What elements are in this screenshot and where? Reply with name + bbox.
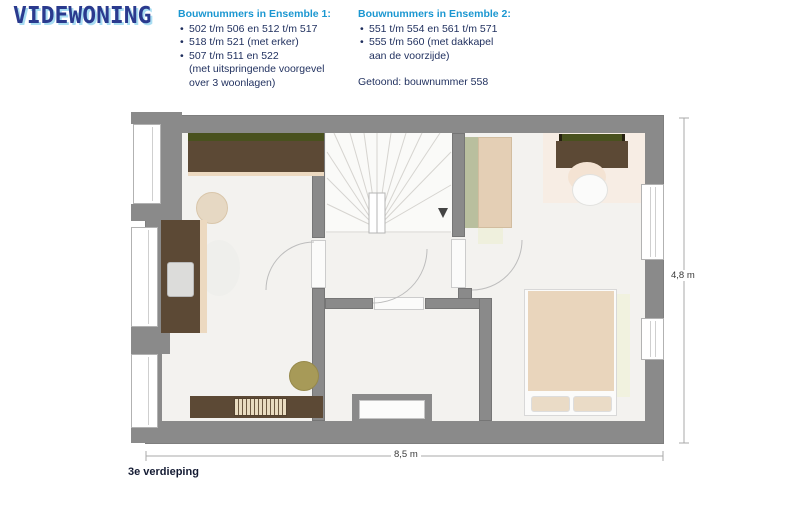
- bay-window: [133, 124, 161, 204]
- basket: [478, 228, 503, 244]
- bay-wall-jamb: [161, 124, 182, 210]
- left-wall-corner: [131, 428, 146, 443]
- dimension-width: 8,5 m: [391, 449, 421, 460]
- ensemble1-item: 507 t/m 511 en 522 (met uitspringende vo…: [178, 50, 358, 91]
- floor-label: 3e verdieping: [128, 466, 199, 478]
- ensemble2-block: Bouwnummers in Ensemble 2: 551 t/m 554 e…: [358, 8, 563, 90]
- ensemble2-title: Bouwnummers in Ensemble 2:: [358, 8, 563, 22]
- brand-logo: VIDEWONING: [13, 3, 151, 29]
- desk-chair: [167, 262, 194, 297]
- desk-left-edge: [200, 220, 207, 333]
- shown-bouwnummer: Getoond: bouwnummer 558: [358, 76, 563, 90]
- desk-chair-bedroom-back: [572, 174, 608, 206]
- ensemble2-list: 551 t/m 554 en 561 t/m 571 555 t/m 560 (…: [358, 23, 563, 64]
- left-window-middle: [131, 227, 158, 327]
- ensemble1-item: 518 t/m 521 (met erker): [178, 36, 358, 50]
- wall-top: [146, 116, 663, 133]
- wall-stairs-right: [452, 133, 465, 237]
- books: [234, 398, 287, 416]
- wall-midroom-right: [479, 298, 492, 421]
- wall-bottom: [146, 421, 663, 443]
- bed-pillow-left: [531, 396, 570, 412]
- right-window-bottom: [641, 318, 664, 360]
- ensemble1-list: 502 t/m 506 en 512 t/m 517 518 t/m 521 (…: [178, 23, 358, 91]
- ensemble2-item: 555 t/m 560 (met dakkapel aan de voorzij…: [358, 36, 563, 63]
- ensemble1-block: Bouwnummers in Ensemble 1: 502 t/m 506 e…: [178, 8, 358, 90]
- staircase: [326, 133, 452, 233]
- dimension-height: 4,8 m: [668, 270, 698, 281]
- bed-runner: [617, 294, 630, 397]
- door-leftroom: [311, 240, 326, 288]
- wardrobe-bedroom-side: [465, 137, 478, 228]
- wardrobe-top-strip: [188, 133, 324, 141]
- wall-midroom-top-left: [325, 298, 373, 309]
- wardrobe-front-edge: [188, 172, 324, 176]
- bay-wall-top: [131, 112, 182, 124]
- ensemble1-item: 502 t/m 506 en 512 t/m 517: [178, 23, 358, 37]
- desk-top-strip: [559, 134, 625, 141]
- right-window-top: [641, 184, 664, 260]
- bed-pillow-right: [573, 396, 612, 412]
- left-window-bottom: [131, 354, 158, 428]
- dormer-window: [359, 400, 425, 419]
- ensemble1-title: Bouwnummers in Ensemble 1:: [178, 8, 358, 22]
- bed-duvet: [528, 291, 614, 391]
- ensemble2-item: 551 t/m 554 en 561 t/m 571: [358, 23, 563, 37]
- door-midroom: [374, 297, 424, 310]
- wall-right: [645, 116, 663, 443]
- bay-wall-bottom: [131, 204, 182, 221]
- wardrobe-left-room: [188, 141, 324, 172]
- wardrobe-bedroom: [478, 137, 512, 228]
- stool-olive: [289, 361, 319, 391]
- door-bedroom: [451, 239, 466, 288]
